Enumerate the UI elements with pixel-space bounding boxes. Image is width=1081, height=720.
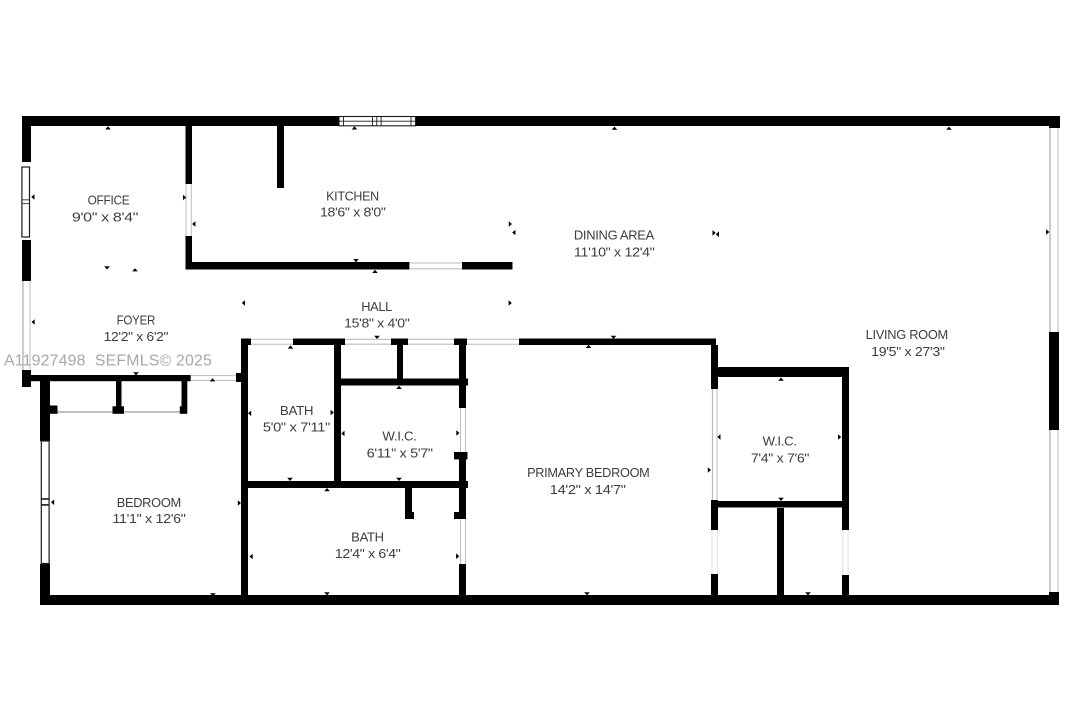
svg-text:6'11" x 5'7": 6'11" x 5'7" [367, 446, 434, 461]
svg-text:BATH: BATH [280, 403, 313, 418]
svg-text:7'4" x 7'6": 7'4" x 7'6" [751, 451, 810, 466]
svg-text:PRIMARY BEDROOM: PRIMARY BEDROOM [527, 465, 649, 480]
svg-text:19'5" x 27'3": 19'5" x 27'3" [871, 344, 945, 359]
svg-text:14'2" x 14'7": 14'2" x 14'7" [550, 482, 627, 497]
svg-text:9'0" x 8'4": 9'0" x 8'4" [72, 210, 139, 225]
svg-text:11'1" x 12'6": 11'1" x 12'6" [112, 511, 186, 526]
svg-text:12'4" x 6'4": 12'4" x 6'4" [335, 546, 401, 561]
svg-text:OFFICE: OFFICE [88, 192, 130, 207]
svg-text:11'10" x 12'4": 11'10" x 12'4" [574, 245, 655, 260]
svg-text:HALL: HALL [361, 299, 392, 314]
svg-text:BATH: BATH [351, 529, 384, 544]
svg-text:A11927498 SEFMLS© 2025: A11927498 SEFMLS© 2025 [4, 353, 212, 370]
svg-text:W.I.C.: W.I.C. [763, 434, 797, 449]
svg-text:18'6" x 8'0": 18'6" x 8'0" [320, 205, 386, 220]
svg-text:5'0" x 7'11": 5'0" x 7'11" [263, 420, 331, 435]
svg-text:FOYER: FOYER [117, 313, 156, 328]
svg-text:LIVING ROOM: LIVING ROOM [866, 327, 948, 342]
svg-text:12'2" x 6'2": 12'2" x 6'2" [104, 329, 169, 344]
svg-text:KITCHEN: KITCHEN [326, 189, 379, 204]
svg-text:W.I.C.: W.I.C. [382, 428, 416, 443]
svg-text:BEDROOM: BEDROOM [117, 495, 181, 510]
svg-text:DINING AREA: DINING AREA [574, 227, 655, 242]
svg-text:15'8" x 4'0": 15'8" x 4'0" [344, 316, 410, 331]
